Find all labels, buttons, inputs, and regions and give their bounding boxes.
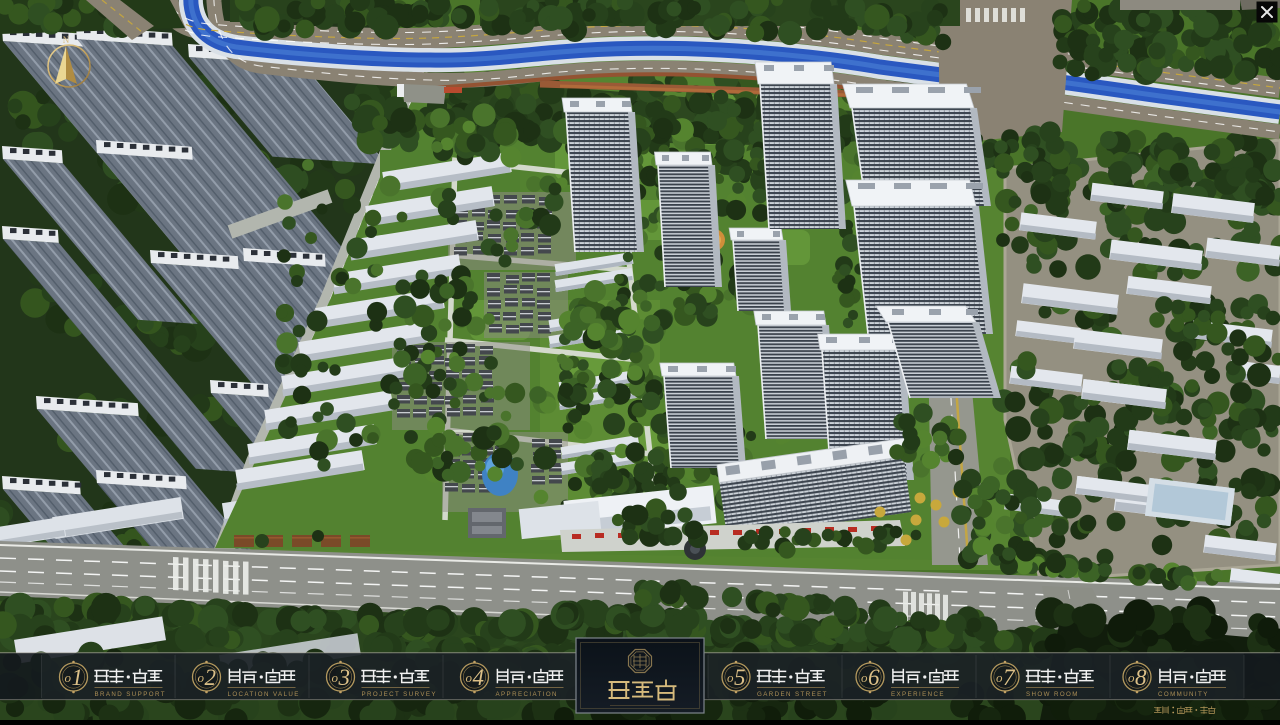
- svg-text:7: 7: [1003, 665, 1016, 690]
- svg-text:2: 2: [205, 665, 217, 690]
- svg-text:SHOW ROOM: SHOW ROOM: [1026, 691, 1079, 698]
- svg-text:o: o: [861, 670, 868, 685]
- svg-text:COMMUNITY: COMMUNITY: [1158, 691, 1209, 698]
- svg-text:o: o: [727, 670, 734, 685]
- svg-text:LOCATION VALUE: LOCATION VALUE: [228, 691, 300, 698]
- svg-text:3: 3: [338, 665, 351, 690]
- svg-text:o: o: [198, 670, 205, 685]
- svg-text:4: 4: [473, 665, 485, 690]
- svg-text:EXPERIENCE: EXPERIENCE: [891, 691, 945, 698]
- svg-text:6: 6: [868, 665, 880, 690]
- svg-text:o: o: [466, 670, 473, 685]
- svg-text:5: 5: [734, 665, 746, 690]
- svg-text:8: 8: [1135, 665, 1147, 690]
- svg-text:o: o: [332, 670, 339, 685]
- svg-text:N: N: [63, 35, 70, 45]
- svg-text:GARDEN STREET: GARDEN STREET: [757, 691, 828, 698]
- svg-text:PROJECT SURVEY: PROJECT SURVEY: [362, 691, 437, 698]
- svg-text:o: o: [996, 670, 1003, 685]
- svg-text:o: o: [65, 670, 72, 685]
- svg-text:1: 1: [72, 665, 84, 690]
- svg-text:o: o: [1128, 670, 1135, 685]
- svg-text:APPRECIATION: APPRECIATION: [496, 691, 558, 698]
- svg-text:BRAND SUPPORT: BRAND SUPPORT: [95, 691, 166, 698]
